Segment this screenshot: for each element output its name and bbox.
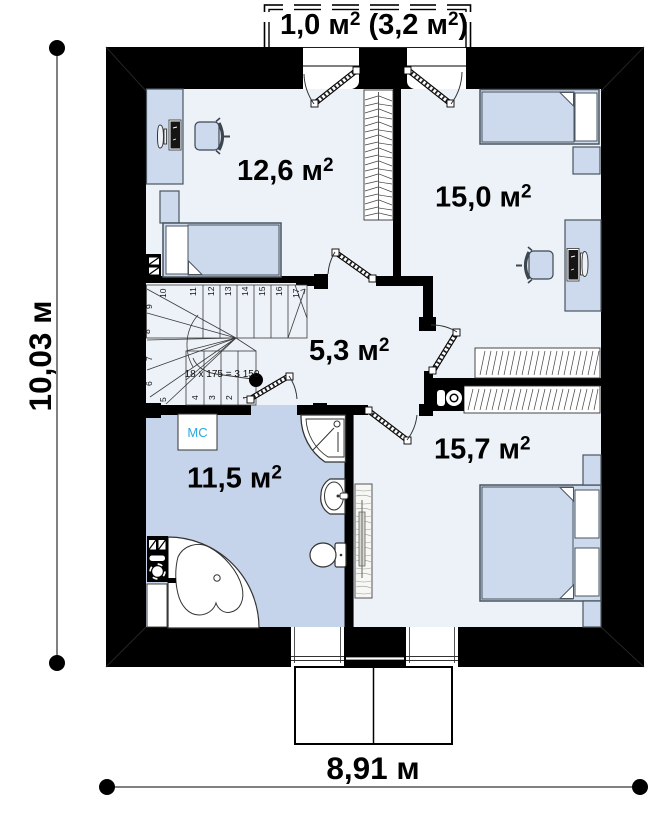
svg-text:10: 10 <box>158 288 168 298</box>
svg-text:15: 15 <box>257 286 267 296</box>
svg-text:11: 11 <box>188 287 198 296</box>
svg-text:5,3 м2: 5,3 м2 <box>309 335 389 367</box>
svg-text:15,0 м2: 15,0 м2 <box>435 182 532 214</box>
svg-text:1,0 м2 (3,2 м2): 1,0 м2 (3,2 м2) <box>280 9 468 41</box>
svg-text:3: 3 <box>207 395 217 400</box>
svg-text:18 x 175 = 3 150: 18 x 175 = 3 150 <box>185 369 260 380</box>
svg-text:8,91 м: 8,91 м <box>326 750 419 786</box>
svg-text:16: 16 <box>274 286 284 296</box>
svg-text:8: 8 <box>142 329 152 334</box>
svg-text:11,5 м2: 11,5 м2 <box>187 463 282 495</box>
svg-text:14: 14 <box>240 286 250 296</box>
svg-text:2: 2 <box>224 395 234 400</box>
svg-text:17: 17 <box>291 288 301 298</box>
svg-text:12,6 м2: 12,6 м2 <box>237 155 334 187</box>
svg-text:10,03 м: 10,03 м <box>22 301 58 412</box>
svg-text:5: 5 <box>158 397 168 402</box>
svg-text:МС: МС <box>187 425 207 440</box>
svg-text:4: 4 <box>190 395 200 400</box>
svg-text:12: 12 <box>206 286 216 296</box>
svg-text:13: 13 <box>223 286 233 296</box>
svg-text:7: 7 <box>144 356 154 361</box>
svg-text:6: 6 <box>144 381 154 386</box>
svg-text:15,7 м2: 15,7 м2 <box>434 434 531 466</box>
svg-text:9: 9 <box>144 304 154 309</box>
